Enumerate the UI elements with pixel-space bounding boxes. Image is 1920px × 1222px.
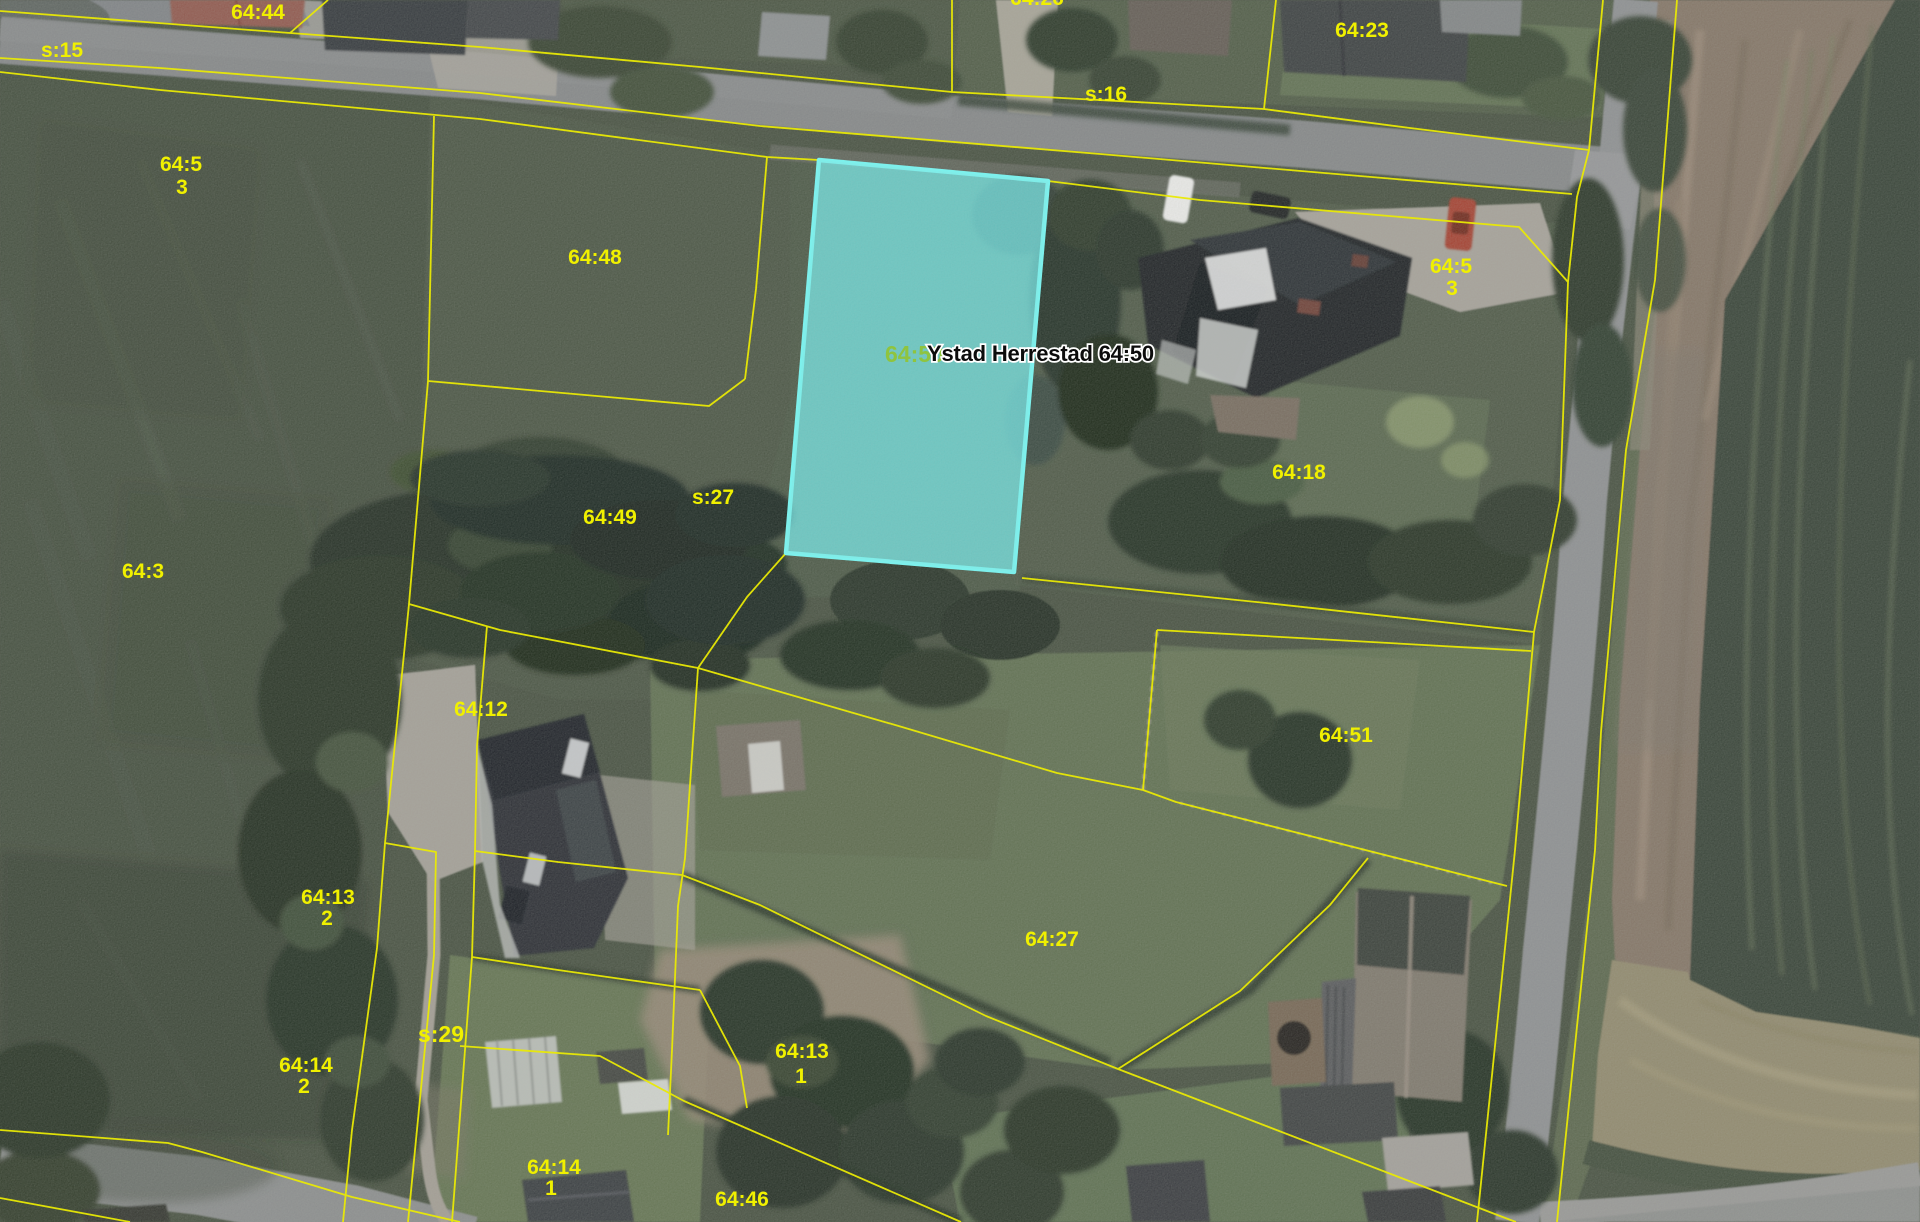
svg-text:64:51: 64:51 [1319, 724, 1373, 747]
svg-text:64:5: 64:5 [160, 153, 202, 176]
svg-text:s:29: s:29 [418, 1021, 464, 1047]
svg-text:64:14: 64:14 [527, 1156, 581, 1179]
svg-text:64:12: 64:12 [454, 698, 508, 721]
svg-text:64:46: 64:46 [715, 1188, 769, 1211]
svg-text:64:48: 64:48 [568, 246, 622, 269]
svg-text:3: 3 [176, 176, 188, 199]
svg-text:64:26: 64:26 [1010, 0, 1064, 10]
svg-text:64:5: 64:5 [1430, 255, 1472, 278]
svg-text:1: 1 [795, 1065, 807, 1088]
svg-text:1: 1 [545, 1177, 557, 1200]
svg-text:64:49: 64:49 [583, 506, 637, 529]
svg-text:s:27: s:27 [692, 486, 734, 509]
svg-text:64:13: 64:13 [775, 1040, 829, 1063]
svg-text:s:16: s:16 [1085, 83, 1127, 106]
svg-text:s:15: s:15 [41, 39, 83, 62]
svg-text:Ystad Herrestad 64:50: Ystad Herrestad 64:50 [927, 341, 1154, 366]
svg-text:2: 2 [321, 907, 333, 930]
svg-text:64:3: 64:3 [122, 560, 164, 583]
svg-text:64:18: 64:18 [1272, 461, 1326, 484]
svg-text:2: 2 [298, 1075, 310, 1098]
svg-text:64:27: 64:27 [1025, 928, 1079, 951]
svg-text:64:23: 64:23 [1335, 19, 1389, 42]
svg-text:64:13: 64:13 [301, 886, 355, 909]
svg-text:3: 3 [1446, 277, 1458, 300]
svg-text:64:14: 64:14 [279, 1054, 333, 1077]
svg-text:64:44: 64:44 [231, 1, 285, 24]
